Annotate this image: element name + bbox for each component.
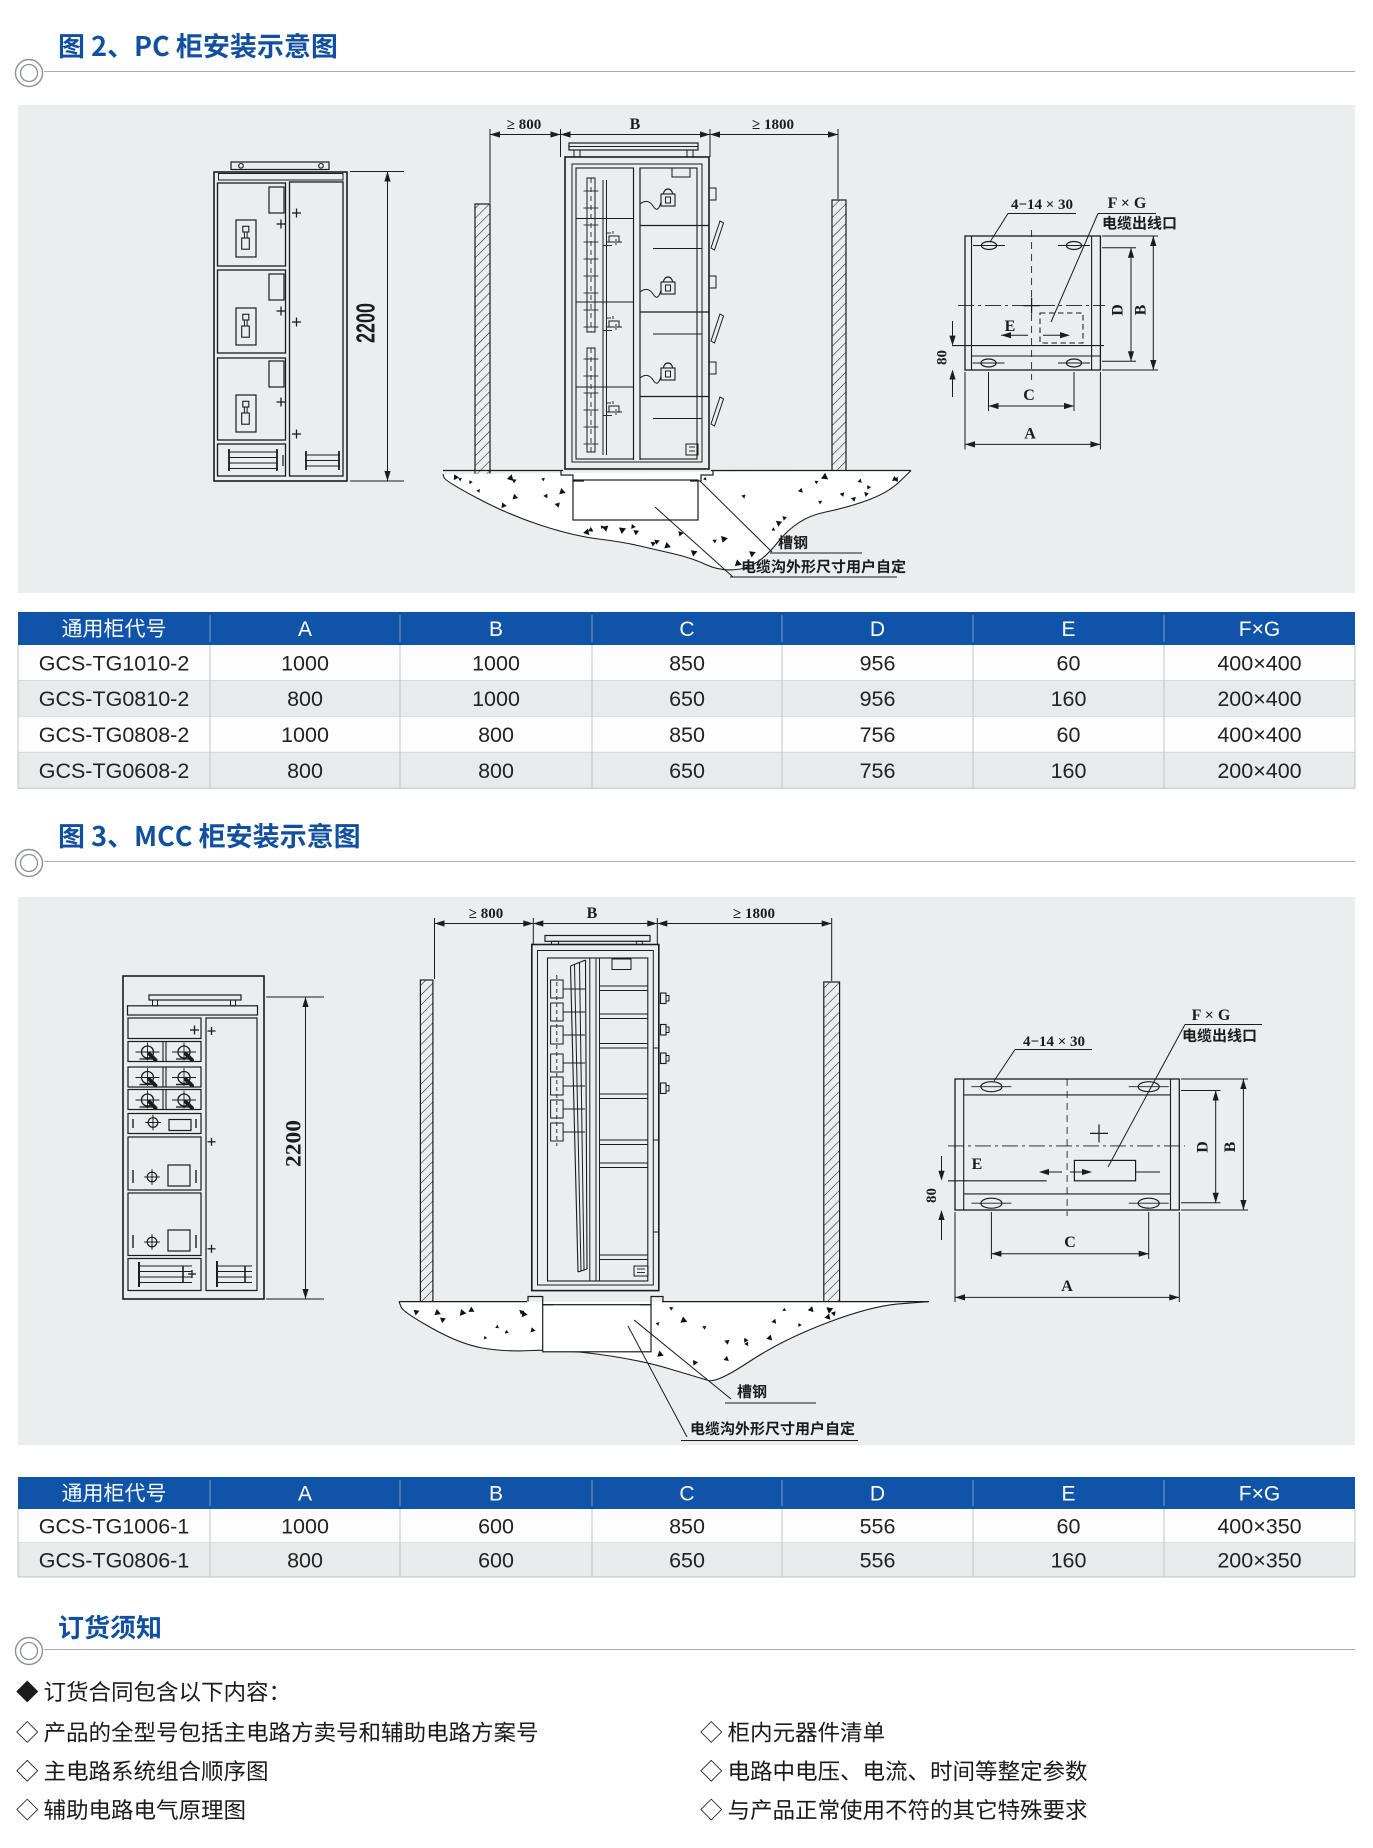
svg-text:650: 650 <box>669 687 705 711</box>
svg-text:4−14 × 30: 4−14 × 30 <box>1011 197 1073 213</box>
svg-text:F×G: F×G <box>1239 1483 1280 1506</box>
svg-text:1000: 1000 <box>472 651 520 675</box>
svg-text:C: C <box>1023 387 1035 404</box>
svg-text:160: 160 <box>1051 1549 1087 1573</box>
svg-text:650: 650 <box>669 1549 705 1573</box>
svg-text:850: 850 <box>669 1515 705 1539</box>
svg-text:1000: 1000 <box>281 1515 329 1539</box>
svg-text:GCS-TG0806-1: GCS-TG0806-1 <box>39 1549 190 1573</box>
svg-text:F×G: F×G <box>1239 618 1280 641</box>
svg-text:C: C <box>1064 1234 1076 1251</box>
svg-text:60: 60 <box>1057 1515 1081 1539</box>
svg-text:756: 756 <box>860 759 896 783</box>
svg-text:B: B <box>489 1483 503 1506</box>
svg-text:E: E <box>1061 618 1075 641</box>
svg-text:200×400: 200×400 <box>1217 759 1301 783</box>
svg-text:B: B <box>587 905 598 922</box>
svg-text:F × G: F × G <box>1192 1007 1231 1024</box>
svg-text:600: 600 <box>478 1549 514 1573</box>
svg-text:160: 160 <box>1051 687 1087 711</box>
svg-text:850: 850 <box>669 723 705 747</box>
svg-text:800: 800 <box>478 723 514 747</box>
svg-text:F × G: F × G <box>1108 195 1147 212</box>
svg-text:D: D <box>870 618 885 641</box>
svg-text:80: 80 <box>924 1188 940 1203</box>
svg-text:≥ 1800: ≥ 1800 <box>752 117 794 133</box>
svg-text:850: 850 <box>669 651 705 675</box>
svg-text:400×400: 400×400 <box>1217 723 1301 747</box>
svg-text:800: 800 <box>478 759 514 783</box>
svg-text:556: 556 <box>860 1515 896 1539</box>
svg-text:800: 800 <box>287 1549 323 1573</box>
svg-text:≥ 800: ≥ 800 <box>507 117 541 133</box>
svg-text:800: 800 <box>287 687 323 711</box>
svg-text:D: D <box>1195 1141 1212 1153</box>
svg-text:4−14 × 30: 4−14 × 30 <box>1023 1034 1085 1050</box>
svg-text:200×350: 200×350 <box>1217 1549 1301 1573</box>
svg-text:E: E <box>1061 1483 1075 1506</box>
svg-text:C: C <box>679 618 694 641</box>
svg-text:GCS-TG0608-2: GCS-TG0608-2 <box>39 759 190 783</box>
svg-text:A: A <box>298 1483 312 1506</box>
svg-text:A: A <box>1024 426 1036 443</box>
svg-text:D: D <box>870 1483 885 1506</box>
svg-text:2200: 2200 <box>281 1120 306 1167</box>
svg-text:B: B <box>1222 1141 1239 1152</box>
svg-text:400×350: 400×350 <box>1217 1515 1301 1539</box>
svg-text:GCS-TG0808-2: GCS-TG0808-2 <box>39 723 190 747</box>
svg-text:400×400: 400×400 <box>1217 651 1301 675</box>
svg-text:200×400: 200×400 <box>1217 687 1301 711</box>
svg-text:E: E <box>972 1156 983 1173</box>
svg-text:C: C <box>679 1483 694 1506</box>
svg-text:600: 600 <box>478 1515 514 1539</box>
svg-text:B: B <box>1133 304 1150 315</box>
svg-text:160: 160 <box>1051 759 1087 783</box>
svg-text:1000: 1000 <box>281 723 329 747</box>
svg-text:≥ 1800: ≥ 1800 <box>733 906 775 922</box>
svg-text:956: 956 <box>860 687 896 711</box>
svg-text:A: A <box>298 618 312 641</box>
svg-text:556: 556 <box>860 1549 896 1573</box>
svg-text:60: 60 <box>1057 651 1081 675</box>
svg-text:60: 60 <box>1057 723 1081 747</box>
svg-text:B: B <box>630 116 641 133</box>
svg-text:2200: 2200 <box>351 303 381 343</box>
svg-text:650: 650 <box>669 759 705 783</box>
svg-text:GCS-TG1010-2: GCS-TG1010-2 <box>39 651 190 675</box>
svg-text:1000: 1000 <box>472 687 520 711</box>
svg-text:A: A <box>1061 1278 1073 1295</box>
svg-text:800: 800 <box>287 759 323 783</box>
svg-text:80: 80 <box>935 350 951 365</box>
svg-text:E: E <box>1005 318 1016 335</box>
svg-text:1000: 1000 <box>281 651 329 675</box>
svg-text:GCS-TG1006-1: GCS-TG1006-1 <box>39 1515 190 1539</box>
svg-text:≥ 800: ≥ 800 <box>469 906 503 922</box>
svg-text:GCS-TG0810-2: GCS-TG0810-2 <box>39 687 190 711</box>
svg-text:956: 956 <box>860 651 896 675</box>
svg-text:D: D <box>1110 304 1127 316</box>
svg-text:B: B <box>489 618 503 641</box>
svg-text:756: 756 <box>860 723 896 747</box>
